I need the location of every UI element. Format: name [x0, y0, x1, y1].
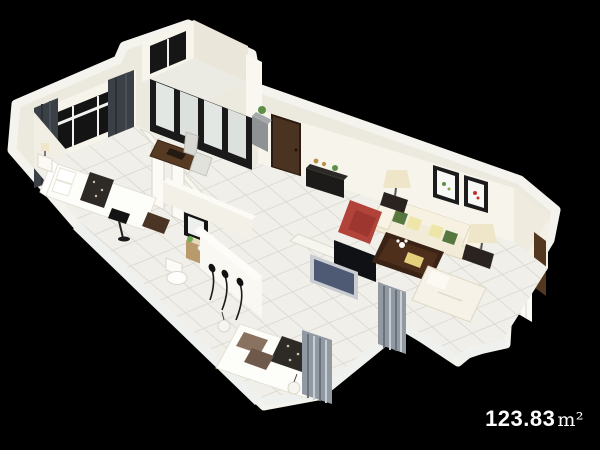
plant-icon — [332, 165, 338, 171]
white-planter-1 — [218, 320, 230, 332]
area-label: 123.83m² — [485, 406, 584, 432]
green-accent — [187, 236, 193, 242]
floorplan-render — [0, 0, 600, 450]
white-planter-2 — [288, 382, 300, 394]
entry-door — [272, 115, 300, 176]
bedside-lamp-icon — [41, 143, 49, 151]
table-lamp-left — [383, 170, 411, 188]
table-lamp-right — [467, 224, 497, 243]
gold-vase-icon — [314, 159, 319, 164]
floorplan-stage: 123.83m² — [0, 0, 600, 450]
area-value: 123.83 — [485, 406, 555, 431]
flower-vase — [399, 242, 405, 248]
grey-curtain-1 — [302, 330, 332, 404]
area-unit: m² — [557, 409, 584, 431]
